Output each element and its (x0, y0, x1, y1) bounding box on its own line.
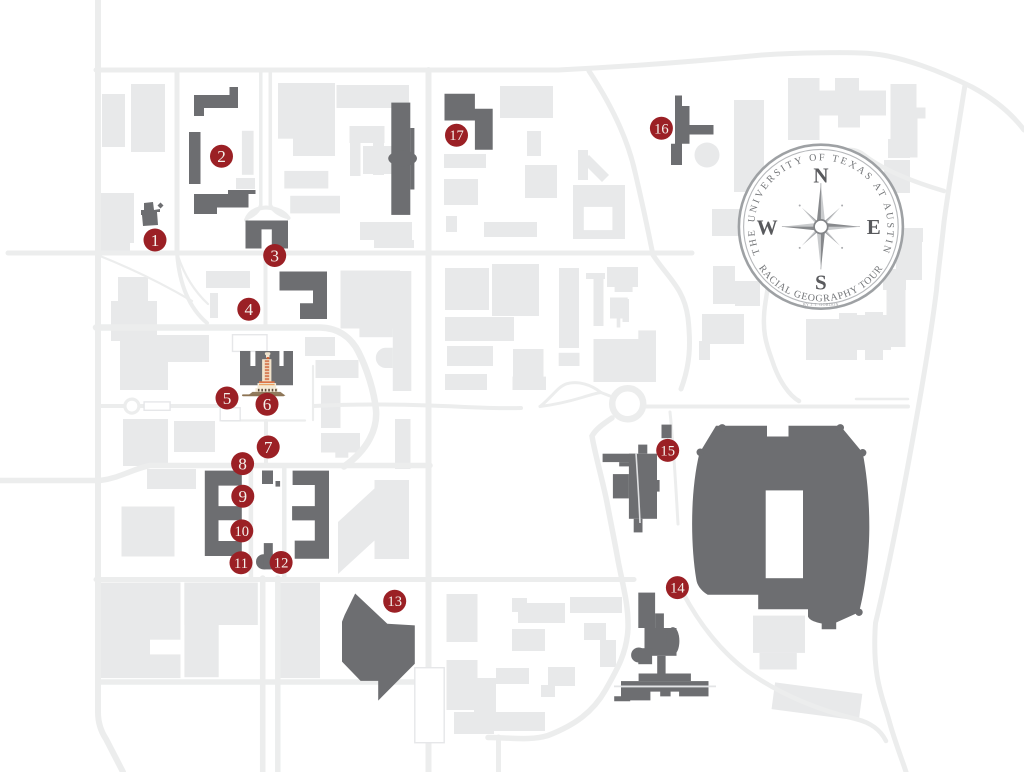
svg-text:2: 2 (217, 147, 226, 166)
svg-text:6: 6 (263, 395, 272, 414)
svg-text:1: 1 (151, 231, 160, 250)
svg-text:W: W (757, 216, 778, 240)
svg-text:10: 10 (235, 524, 250, 540)
svg-text:12: 12 (274, 556, 289, 572)
svg-text:BY J.T. GORDON: BY J.T. GORDON (803, 302, 839, 307)
svg-text:5: 5 (223, 389, 232, 408)
svg-text:4: 4 (245, 300, 254, 319)
svg-text:E: E (867, 215, 881, 239)
svg-text:7: 7 (264, 438, 273, 457)
svg-text:S: S (815, 271, 827, 295)
svg-text:11: 11 (234, 556, 248, 572)
svg-text:16: 16 (654, 121, 669, 137)
svg-text:17: 17 (449, 128, 464, 144)
svg-text:15: 15 (660, 443, 675, 459)
svg-text:8: 8 (238, 455, 247, 474)
svg-text:9: 9 (239, 487, 248, 506)
svg-text:14: 14 (670, 581, 685, 597)
svg-text:13: 13 (387, 594, 402, 610)
svg-text:3: 3 (270, 246, 279, 265)
